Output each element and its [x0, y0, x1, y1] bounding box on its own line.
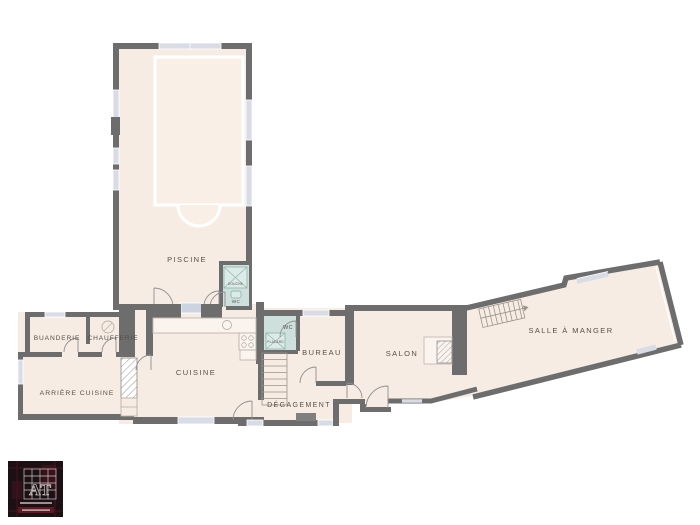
- room-label-piscine: PISCINE: [167, 255, 207, 264]
- room-label-douche: DOUCHE: [228, 282, 243, 286]
- window: [45, 312, 65, 317]
- room-label-chaufferie: CHAUFFERIE: [87, 335, 138, 342]
- stove: [239, 333, 256, 350]
- floor-plan-page: PISCINE DOUCHE WC BUANDERIE CHAUFFERIE A…: [0, 0, 700, 525]
- room-label-cuisine: CUISINE: [176, 368, 216, 377]
- logo-monogram: AT: [29, 482, 52, 499]
- swimming-pool: [155, 57, 243, 226]
- toilet: [231, 291, 241, 298]
- floor-plan: PISCINE DOUCHE WC BUANDERIE CHAUFFERIE A…: [0, 0, 700, 525]
- room-label-wc: WC: [283, 325, 293, 331]
- window: [113, 90, 119, 118]
- room-label-wc-piscine: WC: [232, 299, 241, 304]
- room-label-salle-a-manger: SALLE À MANGER: [528, 326, 613, 335]
- entry-step: [296, 413, 316, 421]
- wall: [119, 310, 135, 357]
- window: [113, 170, 119, 190]
- wall: [452, 305, 467, 375]
- pillar: [111, 117, 120, 135]
- room-label-arriere-cuisine: ARRIÈRE CUISINE: [40, 388, 115, 397]
- logo-text-line: [20, 502, 52, 504]
- room-label-buanderie: BUANDERIE: [34, 335, 81, 342]
- room-label-salon: SALON: [386, 349, 418, 358]
- agency-logo: AT: [8, 461, 63, 517]
- window: [178, 417, 214, 424]
- room-label-degagement: DÉGAGEMENT: [267, 400, 331, 409]
- window: [246, 166, 252, 206]
- window: [303, 310, 329, 316]
- glazed-opening: [181, 303, 202, 313]
- window: [247, 420, 263, 426]
- room-label-bureau: BUREAU: [302, 348, 342, 357]
- room-label-placard: PLACARD: [267, 340, 284, 344]
- window: [113, 148, 119, 164]
- window: [318, 420, 333, 426]
- window: [246, 100, 252, 140]
- wall: [345, 305, 354, 385]
- window: [18, 360, 23, 384]
